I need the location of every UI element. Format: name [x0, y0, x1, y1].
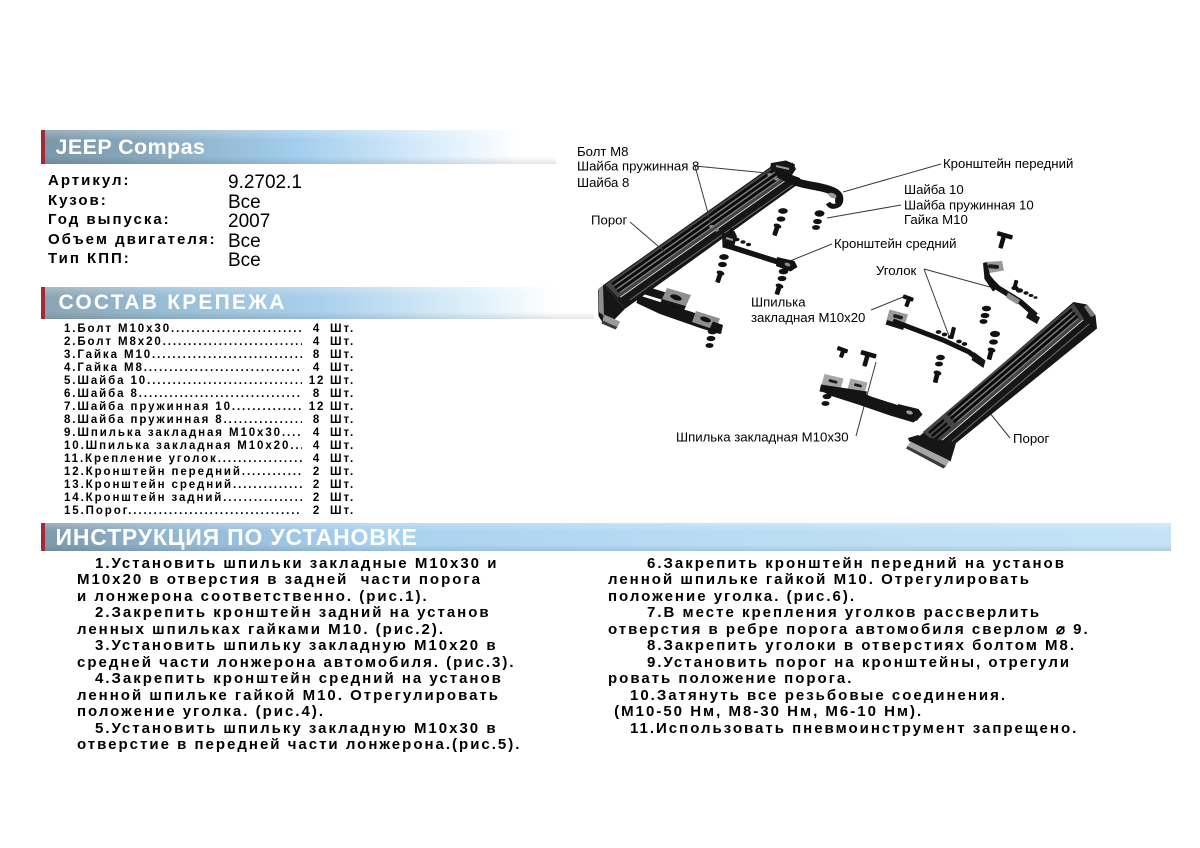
svg-text:закладная М10х20: закладная М10х20	[751, 310, 865, 325]
svg-text:Шайба пружинная 8: Шайба пружинная 8	[577, 159, 699, 174]
svg-text:Шайба 8: Шайба 8	[577, 175, 629, 190]
svg-text:Уголок: Уголок	[876, 263, 917, 278]
svg-text:Шпилька: Шпилька	[751, 295, 806, 310]
svg-text:Гайка М10: Гайка М10	[904, 212, 968, 227]
svg-text:Кронштейн средний: Кронштейн средний	[834, 236, 956, 251]
svg-text:Порог: Порог	[1013, 431, 1049, 446]
svg-text:Шайба 10: Шайба 10	[904, 182, 964, 197]
svg-text:Шайба пружинная 10: Шайба пружинная 10	[904, 198, 1034, 213]
svg-text:Болт М8: Болт М8	[577, 144, 628, 159]
svg-text:Порог: Порог	[591, 213, 627, 228]
svg-text:Шпилька закладная М10х30: Шпилька закладная М10х30	[676, 430, 849, 445]
svg-text:Кронштейн передний: Кронштейн передний	[943, 156, 1073, 171]
